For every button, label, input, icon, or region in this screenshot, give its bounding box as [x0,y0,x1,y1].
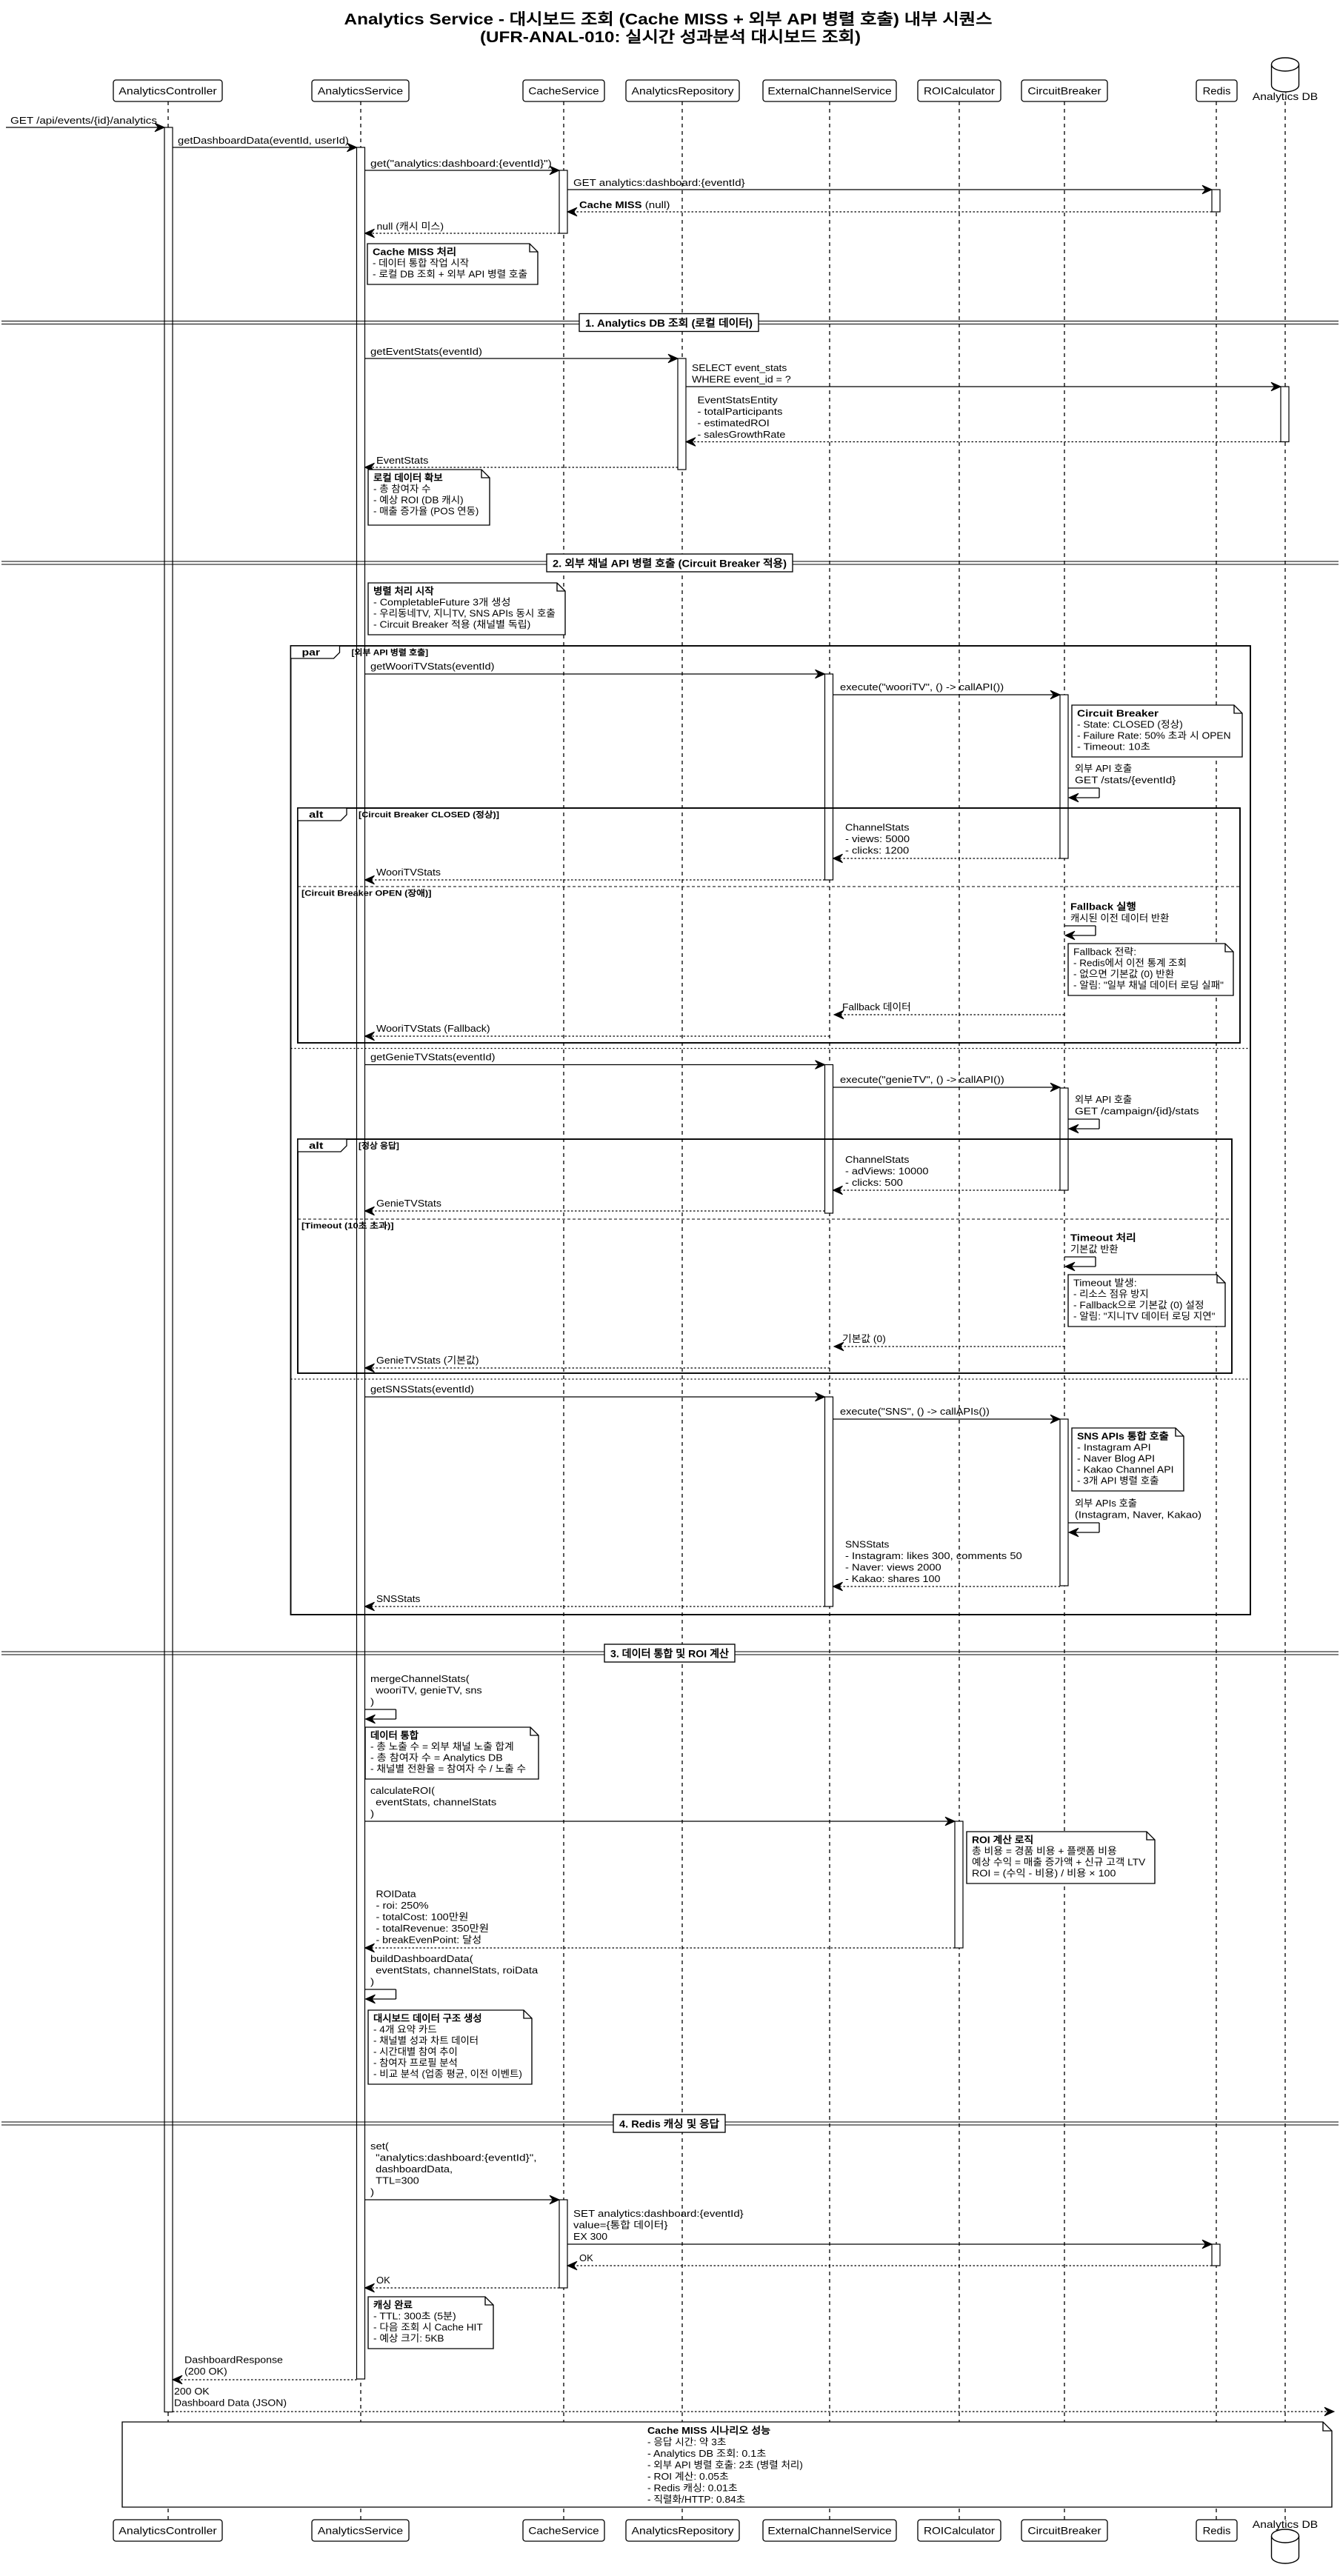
svg-text:SNSStats: SNSStats [845,1539,890,1550]
svg-text:- 알림: "일부 채널 데이터 로딩 실패": - 알림: "일부 채널 데이터 로딩 실패" [1073,980,1224,991]
svg-text:[Timeout (10초 초과)]: [Timeout (10초 초과)] [301,1221,394,1231]
svg-text:ROICalculator: ROICalculator [924,2525,995,2537]
svg-text:AnalyticsService: AnalyticsService [318,85,404,97]
svg-text:- CompletableFuture 3개 생성: - CompletableFuture 3개 생성 [373,597,511,608]
svg-text:EventStatsEntity: EventStatsEntity [698,395,779,406]
svg-text:Timeout 처리: Timeout 처리 [1070,1232,1136,1244]
svg-text:(Instagram, Naver, Kakao): (Instagram, Naver, Kakao) [1075,1509,1201,1521]
svg-text:"analytics:dashboard:{eventId}: "analytics:dashboard:{eventId}", [376,2152,536,2163]
svg-text:- 외부 API 병렬 호출: 2초 (병렬 처리): - 외부 API 병렬 호출: 2초 (병렬 처리) [647,2460,803,2471]
svg-text:- 4개 요약 카드: - 4개 요약 카드 [373,2024,437,2035]
svg-text:DashboardResponse: DashboardResponse [184,2355,283,2366]
svg-text:1. Analytics DB 조회 (로컬 데이터): 1. Analytics DB 조회 (로컬 데이터) [585,317,753,329]
svg-text:set(: set( [370,2140,390,2152]
svg-text:ChannelStats: ChannelStats [845,1154,910,1165]
svg-text:EventStats: EventStats [376,455,429,466]
svg-text:- totalParticipants: - totalParticipants [698,406,783,417]
svg-text:SET analytics:dashboard:{event: SET analytics:dashboard:{eventId} [573,2208,744,2219]
svg-text:외부 API 호출: 외부 API 호출 [1075,1094,1132,1105]
svg-text:ROICalculator: ROICalculator [924,85,995,97]
svg-text:alt: alt [309,809,324,820]
svg-text:SNSStats: SNSStats [376,1593,421,1604]
svg-text:Fallback 데이터: Fallback 데이터 [842,1001,911,1012]
svg-text:SNS APIs 통합 호출: SNS APIs 통합 호출 [1077,1431,1169,1442]
svg-text:- Circuit Breaker 적용 (채널별 독립): - Circuit Breaker 적용 (채널별 독립) [373,619,530,630]
svg-text:- Kakao Channel API: - Kakao Channel API [1077,1464,1174,1475]
svg-text:[외부 API 병렬 호출]: [외부 API 병렬 호출] [352,647,429,658]
svg-text:병렬 처리 시작: 병렬 처리 시작 [373,586,434,597]
svg-text:(200 OK): (200 OK) [184,2366,227,2377]
svg-text:AnalyticsController: AnalyticsController [119,2525,217,2537]
svg-text:ExternalChannelService: ExternalChannelService [767,2525,892,2537]
svg-text:- State: CLOSED (정상): - State: CLOSED (정상) [1077,719,1183,730]
svg-text:- 매출 증가율 (POS 연동): - 매출 증가율 (POS 연동) [373,506,479,517]
svg-text:- 직렬화/HTTP: 0.84초: - 직렬화/HTTP: 0.84초 [647,2494,745,2505]
svg-text:- Instagram: likes 300, commen: - Instagram: likes 300, comments 50 [845,1550,1022,1561]
svg-text:calculateROI(: calculateROI( [370,1785,436,1796]
svg-text:Cache MISS (null): Cache MISS (null) [579,199,670,210]
svg-text:WooriTVStats: WooriTVStats [376,867,441,878]
svg-text:4. Redis 캐싱 및 응답: 4. Redis 캐싱 및 응답 [619,2118,719,2130]
svg-text:- Instagram API: - Instagram API [1077,1442,1151,1453]
svg-text:- Naver Blog API: - Naver Blog API [1077,1453,1155,1464]
svg-text:- 응답 시간: 약 3초: - 응답 시간: 약 3초 [647,2437,726,2448]
svg-text:par: par [302,647,321,658]
svg-text:데이터 통합: 데이터 통합 [370,1730,419,1741]
svg-text:- clicks: 500: - clicks: 500 [845,1177,903,1188]
svg-text:- breakEvenPoint: 달성: - breakEvenPoint: 달성 [376,1935,482,1946]
svg-text:): ) [370,1808,374,1819]
svg-text:getEventStats(eventId): getEventStats(eventId) [370,346,482,357]
svg-text:Analytics DB: Analytics DB [1253,2518,1318,2530]
svg-text:AnalyticsRepository: AnalyticsRepository [632,85,734,97]
svg-text:Cache MISS 처리: Cache MISS 처리 [373,247,456,258]
svg-text:- 총 참여자 수: - 총 참여자 수 [373,484,431,495]
svg-text:- 총 노출 수 = 외부 채널 노출 합계: - 총 노출 수 = 외부 채널 노출 합계 [370,1741,514,1752]
svg-text:- adViews: 10000: - adViews: 10000 [845,1166,929,1177]
svg-text:외부 APIs 호출: 외부 APIs 호출 [1075,1498,1137,1509]
svg-text:- 채널별 성과 차트 데이터: - 채널별 성과 차트 데이터 [373,2035,479,2046]
svg-text:- 총 참여자 수 = Analytics DB: - 총 참여자 수 = Analytics DB [370,1752,503,1764]
svg-text:AnalyticsService: AnalyticsService [318,2525,404,2537]
svg-text:Circuit Breaker: Circuit Breaker [1077,708,1159,719]
svg-text:getSNSStats(eventId): getSNSStats(eventId) [370,1384,474,1395]
svg-text:2. 외부 채널 API 병렬 호출 (Circuit Br: 2. 외부 채널 API 병렬 호출 (Circuit Breaker 적용) [553,558,787,570]
svg-text:SELECT event_stats: SELECT event_stats [692,362,787,373]
svg-text:- 리소스 점유 방지: - 리소스 점유 방지 [1073,1289,1149,1300]
svg-text:- 로컬 DB 조회 + 외부 API 병렬 호출: - 로컬 DB 조회 + 외부 API 병렬 호출 [373,269,527,280]
svg-text:- Naver: views 2000: - Naver: views 2000 [845,1562,941,1573]
svg-text:getGenieTVStats(eventId): getGenieTVStats(eventId) [370,1052,496,1063]
svg-text:- ROI 계산: 0.05초: - ROI 계산: 0.05초 [647,2471,729,2482]
svg-text:- 참여자 프로필 분석: - 참여자 프로필 분석 [373,2058,458,2069]
svg-text:WHERE event_id = ?: WHERE event_id = ? [692,374,791,385]
svg-text:- 예상 ROI (DB 캐시): - 예상 ROI (DB 캐시) [373,495,464,506]
svg-text:ROI = (수익 - 비용) / 비용 × 100: ROI = (수익 - 비용) / 비용 × 100 [972,1868,1116,1879]
svg-text:null (캐시 미스): null (캐시 미스) [377,221,444,232]
svg-text:getDashboardData(eventId, user: getDashboardData(eventId, userId) [178,135,349,146]
svg-text:getWooriTVStats(eventId): getWooriTVStats(eventId) [370,661,495,672]
svg-text:ROI 계산 로직: ROI 계산 로직 [972,1835,1033,1846]
svg-text:execute("genieTV", () -> callA: execute("genieTV", () -> callAPI()) [840,1074,1004,1085]
svg-text:- TTL: 300초 (5분): - TTL: 300초 (5분) [373,2311,456,2322]
svg-text:CacheService: CacheService [528,2525,599,2537]
svg-text:- clicks: 1200: - clicks: 1200 [845,845,909,856]
svg-text:): ) [370,1696,374,1707]
svg-text:- totalRevenue: 350만원: - totalRevenue: 350만원 [376,1923,490,1934]
svg-text:GET /stats/{eventId}: GET /stats/{eventId} [1075,775,1176,786]
svg-text:eventStats, channelStats: eventStats, channelStats [376,1797,497,1808]
svg-text:dashboardData,: dashboardData, [376,2163,453,2175]
svg-text:Fallback 전략:: Fallback 전략: [1073,947,1136,958]
svg-text:캐시된 이전 데이터 반환: 캐시된 이전 데이터 반환 [1070,912,1169,924]
svg-text:mergeChannelStats(: mergeChannelStats( [370,1673,470,1684]
svg-text:- totalCost: 100만원: - totalCost: 100만원 [376,1912,469,1923]
svg-text:OK: OK [376,2275,390,2286]
svg-text:- 다음 조회 시 Cache HIT: - 다음 조회 시 Cache HIT [373,2322,483,2333]
svg-text:GET /api/events/{id}/analytics: GET /api/events/{id}/analytics [10,115,157,126]
svg-text:- 데이터 통합 작업 시작: - 데이터 통합 작업 시작 [373,258,469,269]
svg-text:- 알림: "지니TV 데이터 로딩 지연": - 알림: "지니TV 데이터 로딩 지연" [1073,1311,1216,1322]
svg-text:- 시간대별 참여 추이: - 시간대별 참여 추이 [373,2046,458,2058]
svg-text:OK: OK [579,2252,593,2263]
svg-text:대시보드 데이터 구조 생성: 대시보드 데이터 구조 생성 [373,2013,482,2024]
svg-text:[정상 응답]: [정상 응답] [359,1141,399,1151]
svg-text:Timeout 발생:: Timeout 발생: [1073,1278,1137,1289]
svg-text:alt: alt [309,1140,324,1151]
svg-text:AnalyticsRepository: AnalyticsRepository [632,2525,734,2537]
svg-text:- 우리동네TV, 지니TV, SNS APIs 동시 호출: - 우리동네TV, 지니TV, SNS APIs 동시 호출 [373,608,556,619]
svg-text:- Analytics DB 조회: 0.1초: - Analytics DB 조회: 0.1초 [647,2448,766,2459]
svg-text:TTL=300: TTL=300 [376,2175,419,2186]
svg-text:ROIData: ROIData [376,1889,417,1900]
svg-text:): ) [370,2186,374,2198]
svg-text:): ) [370,1976,374,1987]
svg-text:3. 데이터 통합 및 ROI 계산: 3. 데이터 통합 및 ROI 계산 [610,1648,729,1660]
svg-text:- 비교 분석 (업종 평균, 이전 이벤트): - 비교 분석 (업종 평균, 이전 이벤트) [373,2069,522,2080]
svg-text:기본값 반환: 기본값 반환 [1070,1244,1119,1255]
svg-text:- Timeout: 10초: - Timeout: 10초 [1077,741,1150,753]
svg-text:예상 수익 = 매출 증가액 + 신규 고객 LTV: 예상 수익 = 매출 증가액 + 신규 고객 LTV [972,1857,1146,1868]
svg-text:- Redis에서 이전 통계 조회: - Redis에서 이전 통계 조회 [1073,958,1187,969]
svg-text:- estimatedROI: - estimatedROI [698,418,770,429]
svg-text:- Failure Rate: 50% 초과 시 OPEN: - Failure Rate: 50% 초과 시 OPEN [1077,730,1231,741]
svg-text:(UFR-ANAL-010: 실시간 성과분석 대시보드 조: (UFR-ANAL-010: 실시간 성과분석 대시보드 조회) [480,29,861,46]
svg-text:기본값 (0): 기본값 (0) [842,1333,886,1344]
svg-text:GenieTVStats (기본값): GenieTVStats (기본값) [376,1355,479,1366]
svg-text:- salesGrowthRate: - salesGrowthRate [698,429,786,440]
svg-text:[Circuit Breaker OPEN (장애)]: [Circuit Breaker OPEN (장애)] [301,888,432,898]
svg-text:- Redis 캐싱: 0.01초: - Redis 캐싱: 0.01초 [647,2483,738,2494]
svg-text:CacheService: CacheService [528,85,599,97]
svg-text:execute("SNS", () -> callAPIs(: execute("SNS", () -> callAPIs()) [840,1406,990,1417]
svg-text:외부 API 호출: 외부 API 호출 [1075,763,1132,774]
svg-text:- 채널별 전환율 = 참여자 수 / 노출 수: - 채널별 전환율 = 참여자 수 / 노출 수 [370,1764,526,1775]
svg-text:execute("wooriTV", () -> callA: execute("wooriTV", () -> callAPI()) [840,681,1004,693]
svg-text:ChannelStats: ChannelStats [845,822,910,833]
svg-text:GET /campaign/{id}/stats: GET /campaign/{id}/stats [1075,1106,1199,1117]
svg-text:[Circuit Breaker CLOSED (정상)]: [Circuit Breaker CLOSED (정상)] [359,810,499,820]
svg-text:WooriTVStats (Fallback): WooriTVStats (Fallback) [376,1023,490,1034]
svg-text:로컬 데이터 확보: 로컬 데이터 확보 [373,473,443,484]
svg-text:- Kakao: shares 100: - Kakao: shares 100 [845,1573,941,1584]
svg-text:EX 300: EX 300 [573,2231,607,2242]
svg-text:- roi: 250%: - roi: 250% [376,1900,430,1911]
svg-text:- 3개 API 병렬 호출: - 3개 API 병렬 호출 [1077,1475,1159,1486]
svg-text:- 예상 크기: 5KB: - 예상 크기: 5KB [373,2333,444,2344]
svg-text:- 없으면 기본값 (0) 반환: - 없으면 기본값 (0) 반환 [1073,969,1174,980]
svg-text:get("analytics:dashboard:{even: get("analytics:dashboard:{eventId}") [370,158,552,169]
svg-text:- Fallback으로 기본값 (0) 설정: - Fallback으로 기본값 (0) 설정 [1073,1300,1204,1311]
svg-text:value={통합 데이터}: value={통합 데이터} [573,2220,668,2231]
svg-text:buildDashboardData(: buildDashboardData( [370,1953,473,1964]
svg-text:wooriTV, genieTV, sns: wooriTV, genieTV, sns [375,1685,482,1696]
svg-text:캐싱 완료: 캐싱 완료 [373,2300,413,2311]
svg-text:Cache MISS 시나리오 성능: Cache MISS 시나리오 성능 [647,2425,770,2436]
svg-text:총 비용 = 경품 비용 + 플랫폼 비용: 총 비용 = 경품 비용 + 플랫폼 비용 [972,1846,1117,1857]
svg-text:ExternalChannelService: ExternalChannelService [767,85,892,97]
svg-text:Redis: Redis [1203,85,1231,97]
svg-text:GenieTVStats: GenieTVStats [376,1198,441,1209]
svg-text:200 OK: 200 OK [174,2386,210,2397]
svg-text:- views: 5000: - views: 5000 [845,833,910,844]
svg-text:Analytics DB: Analytics DB [1253,90,1318,102]
svg-text:AnalyticsController: AnalyticsController [119,85,217,97]
svg-text:GET analytics:dashboard:{event: GET analytics:dashboard:{eventId} [573,177,745,188]
svg-text:CircuitBreaker: CircuitBreaker [1027,85,1101,97]
svg-text:Redis: Redis [1203,2525,1231,2537]
svg-text:Fallback 실행: Fallback 실행 [1070,901,1136,912]
svg-text:Dashboard Data (JSON): Dashboard Data (JSON) [174,2398,287,2409]
svg-text:CircuitBreaker: CircuitBreaker [1027,2525,1101,2537]
svg-text:eventStats, channelStats, roiD: eventStats, channelStats, roiData [376,1965,539,1976]
svg-text:Analytics Service - 대시보드 조회 (C: Analytics Service - 대시보드 조회 (Cache MISS … [344,11,993,28]
